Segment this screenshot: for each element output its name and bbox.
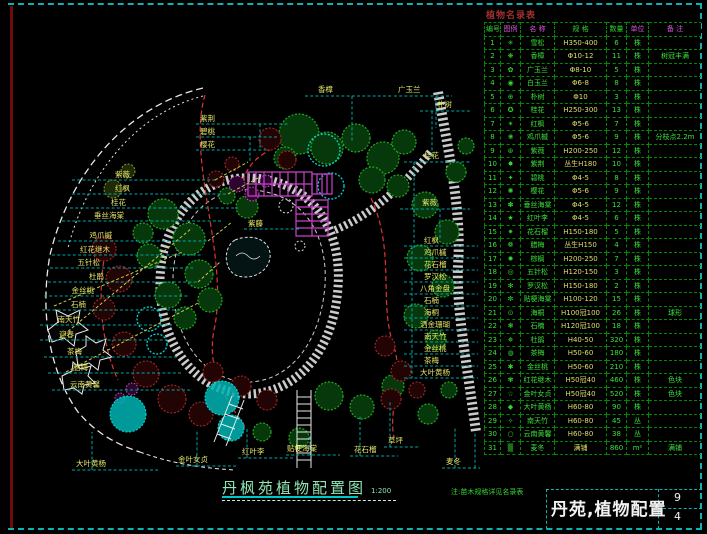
tree-cluster (441, 382, 457, 398)
schedule-cell: 1 (485, 36, 501, 50)
shrub-cluster (409, 382, 425, 398)
schedule-cell: 红枫 (521, 117, 555, 131)
schedule-cell: 12 (485, 185, 501, 199)
schedule-header-row: 编号图例名 称规 格数量单位备 注 (485, 23, 702, 37)
schedule-cell: 碧桃 (521, 171, 555, 185)
schedule-cell: 树冠丰满 (649, 50, 702, 64)
schedule-header-cell: 单位 (627, 23, 649, 37)
schedule-cell (649, 320, 702, 334)
schedule-cell: 12 (607, 144, 627, 158)
flower-cluster (245, 187, 259, 201)
schedule-cell: 株 (627, 239, 649, 253)
schedule-cell (649, 252, 702, 266)
schedule-cell: 31 (485, 441, 501, 455)
schedule-row: 3✿广玉兰Φ8-105株 (485, 63, 702, 77)
plant-label: 金丝桃 (424, 343, 447, 353)
plant-label: 大叶黄杨 (76, 458, 106, 468)
schedule-cell (649, 158, 702, 172)
plant-schedule: 编号图例名 称规 格数量单位备 注 1✳雪松H350-4006株2❋香樟Φ10-… (484, 22, 701, 488)
schedule-cell: 26 (607, 306, 627, 320)
plant-label: 花石榴 (424, 259, 447, 269)
schedule-cell: Φ5-6 (555, 117, 607, 131)
flower-cluster (260, 175, 272, 187)
schedule-cell: 株 (627, 117, 649, 131)
plant-label: 八角金盘 (420, 283, 450, 293)
schedule-row: 29✧南天竹H60-8045丛 (485, 414, 702, 428)
schedule-cell: ○ (501, 428, 521, 442)
schedule-cell: 红花继木 (521, 374, 555, 388)
tree-cluster (418, 404, 438, 424)
drawing-scale: 1:200 (371, 487, 391, 495)
tree-cluster (315, 382, 343, 410)
schedule-cell: H60-80 (555, 414, 607, 428)
sheet-number-top: 9 (674, 491, 681, 504)
schedule-cell: Φ4-5 (555, 171, 607, 185)
shrub-cluster (259, 128, 281, 150)
shrub-cluster (112, 332, 136, 356)
schedule-cell: ❁ (501, 239, 521, 253)
schedule-cell: 紫薇 (521, 144, 555, 158)
schedule-cell: 6 (607, 36, 627, 50)
schedule-cell: H40-50 (555, 333, 607, 347)
shrub-cluster (225, 157, 239, 171)
schedule-row: 21⊙海桐H100冠10026株球形 (485, 306, 702, 320)
schedule-cell: 18 (607, 320, 627, 334)
schedule-cell: 5 (485, 90, 501, 104)
schedule-cell: ✳ (501, 36, 521, 50)
schedule-row: 27☆金叶女贞H50冠40520株色块 (485, 387, 702, 401)
schedule-cell (649, 90, 702, 104)
schedule-cell: 南天竹 (521, 414, 555, 428)
plant-label: 垂丝海棠 (94, 210, 124, 220)
schedule-cell (649, 347, 702, 361)
tree-cluster (198, 288, 222, 312)
schedule-row: 10✸紫荆丛生H18010株 (485, 158, 702, 172)
schedule-cell: 45 (607, 414, 627, 428)
plant-label: 罗汉松 (424, 271, 447, 281)
plant-label: 茶梅 (67, 346, 82, 356)
schedule-cell: 9 (607, 131, 627, 145)
schedule-cell: ⊛ (501, 144, 521, 158)
schedule-cell: 24 (485, 347, 501, 361)
schedule-cell: 株 (627, 77, 649, 91)
schedule-cell: H200-250 (555, 144, 607, 158)
schedule-row: 13✽垂丝海棠Φ4-512株 (485, 198, 702, 212)
schedule-cell: 株 (627, 320, 649, 334)
schedule-cell: 26 (485, 374, 501, 388)
schedule-cell: 满铺 (649, 441, 702, 455)
schedule-cell: ☆ (501, 387, 521, 401)
schedule-cell: 株 (627, 401, 649, 415)
cyan-tree (137, 307, 161, 331)
schedule-cell: 6 (485, 104, 501, 118)
schedule-cell: 株 (627, 360, 649, 374)
schedule-cell: 色块 (649, 387, 702, 401)
schedule-cell: 株 (627, 104, 649, 118)
plant-label: 杜鹃 (89, 271, 104, 281)
title-block-border-top (546, 489, 702, 490)
plant-label: 花石榴 (354, 444, 377, 454)
plant-label: 红枫 (115, 183, 130, 193)
plant-label: 五针松 (78, 257, 101, 267)
schedule-cell: Φ5-6 (555, 185, 607, 199)
schedule-cell (649, 239, 702, 253)
schedule-cell: 11 (607, 50, 627, 64)
schedule-cell: 云南黄馨 (521, 428, 555, 442)
schedule-row: 11✦碧桃Φ4-58株 (485, 171, 702, 185)
schedule-cell: H100冠100 (555, 306, 607, 320)
schedule-cell (649, 117, 702, 131)
schedule-cell: ❀ (501, 131, 521, 145)
schedule-header-cell: 备 注 (649, 23, 702, 37)
schedule-cell (649, 225, 702, 239)
schedule-cell: ✦ (501, 171, 521, 185)
schedule-cell: 株 (627, 347, 649, 361)
schedule-cell (649, 279, 702, 293)
schedule-row: 4◉白玉兰Φ6-88株 (485, 77, 702, 91)
schedule-cell (649, 171, 702, 185)
schedule-cell: 株 (627, 333, 649, 347)
schedule-row: 9⊛紫薇H200-25012株 (485, 144, 702, 158)
cyan-tree (147, 334, 167, 354)
schedule-cell: ❃ (501, 320, 521, 334)
shrub-cluster (133, 361, 159, 387)
tree-cluster (446, 162, 466, 182)
plant-label: 南天竹 (424, 331, 447, 341)
schedule-cell: 7 (607, 252, 627, 266)
schedule-cell: ✻ (501, 279, 521, 293)
schedule-table[interactable]: 编号图例名 称规 格数量单位备 注 1✳雪松H350-4006株2❋香樟Φ10-… (484, 22, 701, 455)
plant-label: 鸡爪槭 (90, 230, 113, 240)
plant-label: 鸡爪槭 (424, 247, 447, 257)
schedule-cell: 2 (485, 50, 501, 64)
schedule-cell: ❋ (501, 50, 521, 64)
schedule-cell (649, 360, 702, 374)
schedule-row: 30○云南黄馨H60-8038丛 (485, 428, 702, 442)
plant-label: 红花继木 (80, 244, 110, 254)
title-underline-solid (222, 496, 358, 498)
schedule-cell: 23 (485, 333, 501, 347)
title-block-name: 丹苑,植物配置 (551, 495, 666, 520)
schedule-row: 1✳雪松H350-4006株 (485, 36, 702, 50)
schedule-cell: 90 (607, 401, 627, 415)
schedule-cell: 五针松 (521, 266, 555, 280)
schedule-cell: 3 (607, 266, 627, 280)
flower-cluster (229, 176, 245, 192)
schedule-cell: 株 (627, 374, 649, 388)
schedule-cell: ▒ (501, 441, 521, 455)
shrub-cluster (203, 362, 223, 382)
tree-cluster (387, 175, 409, 197)
plant-label: 茶梅 (424, 355, 439, 365)
schedule-cell: ✽ (501, 198, 521, 212)
schedule-cell: 茶梅 (521, 347, 555, 361)
plant-label: 桂花 (424, 150, 439, 160)
schedule-cell: 9 (485, 144, 501, 158)
schedule-cell: 大叶黄杨 (521, 401, 555, 415)
plant-label: 樱花 (200, 139, 215, 149)
schedule-cell: 丛生H150 (555, 239, 607, 253)
tree-cluster (148, 199, 178, 229)
schedule-cell (649, 212, 702, 226)
schedule-row: 28◆大叶黄杨H60-8090株 (485, 401, 702, 415)
schedule-row: 5⊕朴树Φ103株 (485, 90, 702, 104)
schedule-cell: ✱ (501, 360, 521, 374)
schedule-cell: 28 (485, 401, 501, 415)
schedule-cell: ✺ (501, 185, 521, 199)
tree-cluster (185, 260, 213, 288)
schedule-cell: H50-60 (555, 360, 607, 374)
plant-label: 紫薇 (115, 169, 130, 179)
schedule-cell (649, 144, 702, 158)
schedule-cell: 株 (627, 198, 649, 212)
schedule-cell: 朴树 (521, 90, 555, 104)
tree-cluster (155, 282, 181, 308)
shrub-cluster (158, 385, 186, 413)
schedule-row: 8❀鸡爪槭Φ5-69株分枝点2.2m (485, 131, 702, 145)
schedule-cell: 花石榴 (521, 225, 555, 239)
plant-label: 南天竹 (58, 314, 81, 324)
schedule-cell: H50-60 (555, 347, 607, 361)
schedule-cell: 25 (485, 360, 501, 374)
plant-label: 紫藤 (248, 218, 263, 228)
schedule-cell: 垂丝海棠 (521, 198, 555, 212)
schedule-cell: 8 (607, 77, 627, 91)
schedule-cell: H60-80 (555, 401, 607, 415)
tree-cluster (133, 223, 153, 243)
schedule-cell: 8 (607, 171, 627, 185)
schedule-cell (649, 77, 702, 91)
schedule-cell: 分枝点2.2m (649, 131, 702, 145)
schedule-cell: Φ4-5 (555, 212, 607, 226)
flower-cluster (126, 383, 138, 395)
schedule-cell: Φ5-6 (555, 131, 607, 145)
schedule-cell: 8 (485, 131, 501, 145)
schedule-cell: 6 (607, 212, 627, 226)
schedule-cell: 腊梅 (521, 239, 555, 253)
schedule-cell: ✹ (501, 252, 521, 266)
plant-label: 草坪 (388, 435, 403, 445)
schedule-cell (649, 266, 702, 280)
schedule-cell: 株 (627, 36, 649, 50)
schedule-cell: ✿ (501, 63, 521, 77)
schedule-row: 18◎五针松H120-1503株 (485, 266, 702, 280)
plant-label: 石楠 (424, 295, 439, 305)
schedule-header-cell: 数量 (607, 23, 627, 37)
schedule-cell: 株 (627, 171, 649, 185)
plant-label: 云南黄馨 (70, 379, 100, 389)
schedule-cell: ⊙ (501, 306, 521, 320)
schedule-cell: ✸ (501, 158, 521, 172)
schedule-cell: 210 (607, 360, 627, 374)
schedule-cell: 180 (607, 347, 627, 361)
schedule-cell: 鸡爪槭 (521, 131, 555, 145)
schedule-cell (649, 414, 702, 428)
plant-label: 麦冬 (446, 456, 461, 466)
drawing-title: 丹枫苑植物配置图1:200 (222, 477, 391, 498)
plant-label: 桂花 (111, 197, 126, 207)
schedule-header-cell: 规 格 (555, 23, 607, 37)
schedule-row: 12✺樱花Φ5-69株 (485, 185, 702, 199)
schedule-cell: H350-400 (555, 36, 607, 50)
cad-viewport[interactable]: 紫薇红枫桂花垂丝海棠鸡爪槭红花继木五针松杜鹃金丝桃石楠南天竹迎春茶梅腊梅云南黄馨… (0, 0, 707, 534)
schedule-cell: 5 (607, 63, 627, 77)
schedule-cell (649, 36, 702, 50)
plant-label: 贴梗海棠 (287, 443, 317, 453)
plant-label: 洒金珊瑚 (420, 319, 450, 329)
schedule-cell: 29 (485, 414, 501, 428)
schedule-row: 23✵杜鹃H40-50320株 (485, 333, 702, 347)
schedule-cell: 株 (627, 225, 649, 239)
schedule-cell: 4 (607, 239, 627, 253)
schedule-cell: H60-80 (555, 428, 607, 442)
schedule-header-cell: 名 称 (521, 23, 555, 37)
schedule-row: 17✹棕榈H200-2507株 (485, 252, 702, 266)
schedule-cell (649, 104, 702, 118)
schedule-row: 20✼贴梗海棠H100-12015株 (485, 293, 702, 307)
tree-cluster (359, 167, 385, 193)
schedule-cell: ◍ (501, 347, 521, 361)
schedule-cell: 株 (627, 63, 649, 77)
plant-label: 朴树 (437, 99, 452, 109)
schedule-row: 25✱金丝桃H50-60210株 (485, 360, 702, 374)
schedule-cell: 株 (627, 212, 649, 226)
plant-label: 紫薇 (422, 197, 437, 207)
schedule-cell: 18 (485, 266, 501, 280)
tree-cluster (173, 223, 205, 255)
schedule-cell (649, 293, 702, 307)
schedule-cell: 7 (607, 117, 627, 131)
schedule-cell: 20 (485, 293, 501, 307)
drawing-title-text: 丹枫苑植物配置图 (222, 479, 366, 497)
schedule-cell: 贴梗海棠 (521, 293, 555, 307)
schedule-cell: 球形 (649, 306, 702, 320)
schedule-cell: 11 (485, 171, 501, 185)
schedule-cell: 30 (485, 428, 501, 442)
schedule-cell: 满铺 (555, 441, 607, 455)
schedule-cell: 丛 (627, 428, 649, 442)
schedule-cell: ✪ (501, 104, 521, 118)
schedule-cell (649, 198, 702, 212)
schedule-cell: Φ6-8 (555, 77, 607, 91)
schedule-cell: 株 (627, 252, 649, 266)
schedule-cell: 株 (627, 387, 649, 401)
schedule-cell (649, 428, 702, 442)
schedule-cell: 10 (485, 158, 501, 172)
schedule-cell: ✶ (501, 117, 521, 131)
schedule-cell: 27 (485, 387, 501, 401)
cyan-tree-filled (205, 381, 239, 415)
schedule-cell: 棕榈 (521, 252, 555, 266)
schedule-cell: H250-300 (555, 104, 607, 118)
schedule-cell: 色块 (649, 374, 702, 388)
schedule-cell: 株 (627, 306, 649, 320)
schedule-cell: ★ (501, 212, 521, 226)
schedule-cell: Φ10-12 (555, 50, 607, 64)
schedule-cell: ✧ (501, 414, 521, 428)
title-block-border-left (546, 489, 547, 529)
schedule-cell: 株 (627, 90, 649, 104)
schedule-cell: 13 (485, 198, 501, 212)
schedule-cell: 丛生H180 (555, 158, 607, 172)
schedule-cell: H120冠100 (555, 320, 607, 334)
plant-label: 石楠 (71, 299, 86, 309)
schedule-cell: 10 (607, 158, 627, 172)
title-underline-dashed (222, 500, 396, 501)
plant-label: 广玉兰 (398, 84, 421, 94)
plant-label: 大叶黄杨 (420, 367, 450, 377)
tree-cluster (392, 130, 416, 154)
plant-label: 海桐 (424, 307, 439, 317)
schedule-cell: 桂花 (521, 104, 555, 118)
cyan-tree-filled (110, 396, 146, 432)
schedule-cell: 株 (627, 144, 649, 158)
schedule-cell: 15 (607, 293, 627, 307)
schedule-cell: 罗汉松 (521, 279, 555, 293)
schedule-row: 24◍茶梅H50-60180株 (485, 347, 702, 361)
schedule-cell: 19 (485, 279, 501, 293)
schedule-header-cell: 编号 (485, 23, 501, 37)
tree-cluster (342, 124, 370, 152)
schedule-cell: m² (627, 441, 649, 455)
schedule-cell: H120-150 (555, 266, 607, 280)
schedule-cell: H50冠40 (555, 374, 607, 388)
schedule-cell: ◎ (501, 266, 521, 280)
schedule-cell: 7 (485, 117, 501, 131)
schedule-cell: 株 (627, 158, 649, 172)
tree-cluster (253, 423, 271, 441)
schedule-cell: 2 (607, 279, 627, 293)
schedule-cell: 白玉兰 (521, 77, 555, 91)
schedule-cell: 海桐 (521, 306, 555, 320)
schedule-cell: 520 (607, 387, 627, 401)
schedule-cell: 麦冬 (521, 441, 555, 455)
schedule-cell: 金叶女贞 (521, 387, 555, 401)
shrub-cluster (391, 361, 411, 381)
schedule-cell: 21 (485, 306, 501, 320)
schedule-cell: 13 (607, 104, 627, 118)
schedule-cell: 4 (485, 77, 501, 91)
schedule-cell: H150-180 (555, 279, 607, 293)
schedule-cell: 3 (607, 90, 627, 104)
schedule-cell (649, 333, 702, 347)
schedule-row: 22❃石楠H120冠10018株 (485, 320, 702, 334)
schedule-cell: 金丝桃 (521, 360, 555, 374)
schedule-cell: 38 (607, 428, 627, 442)
schedule-cell: 12 (607, 198, 627, 212)
plant-label: 红枫 (424, 235, 439, 245)
schedule-cell: 株 (627, 185, 649, 199)
schedule-cell: ◉ (501, 77, 521, 91)
schedule-cell: ⊕ (501, 90, 521, 104)
schedule-cell: 株 (627, 50, 649, 64)
schedule-cell: 香樟 (521, 50, 555, 64)
schedule-cell: 雪松 (521, 36, 555, 50)
schedule-cell: ✼ (501, 293, 521, 307)
schedule-cell: 杜鹃 (521, 333, 555, 347)
schedule-row: 7✶红枫Φ5-67株 (485, 117, 702, 131)
schedule-cell: 株 (627, 293, 649, 307)
schedule-cell: H100-120 (555, 293, 607, 307)
schedule-cell: 460 (607, 374, 627, 388)
schedule-cell: Φ4-5 (555, 198, 607, 212)
footnote: 注:苗木规格详见名录表 (451, 487, 523, 497)
schedule-cell: 320 (607, 333, 627, 347)
schedule-cell: 22 (485, 320, 501, 334)
schedule-row: 19✻罗汉松H150-1802株 (485, 279, 702, 293)
schedule-cell: 石楠 (521, 320, 555, 334)
schedule-row: 16❁腊梅丛生H1504株 (485, 239, 702, 253)
